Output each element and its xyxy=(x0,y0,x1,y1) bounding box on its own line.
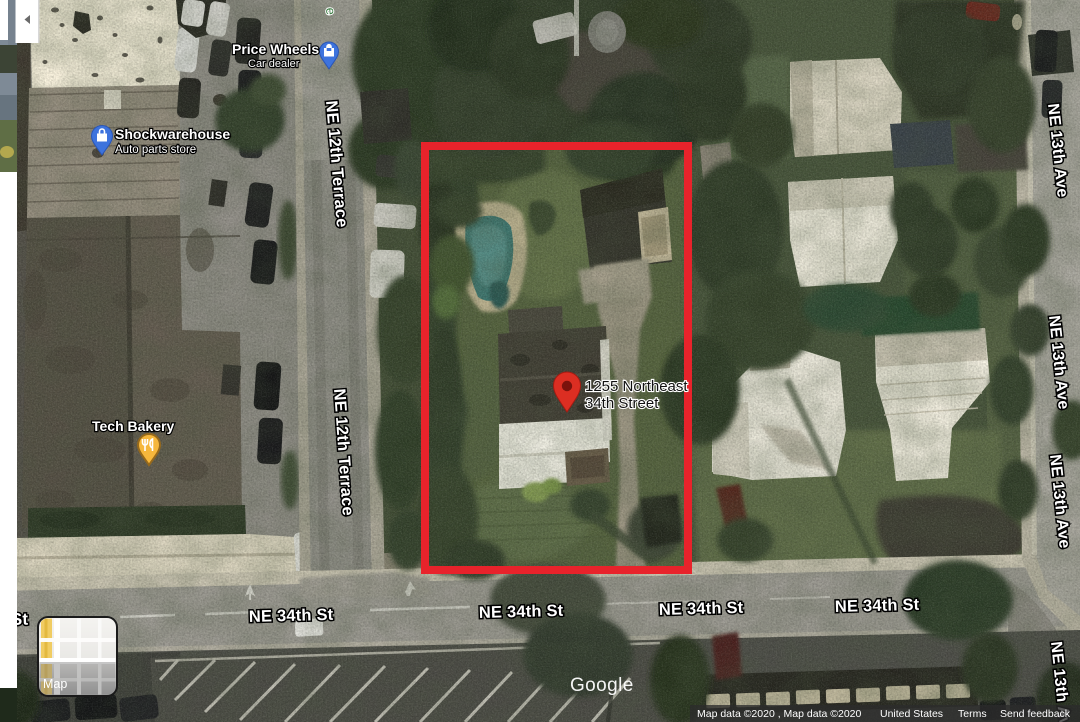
svg-text:Auto parts store: Auto parts store xyxy=(115,144,196,156)
svg-text:Send feedback: Send feedback xyxy=(1000,708,1071,720)
svg-text:Google: Google xyxy=(570,675,634,696)
svg-text:Price Wheels: Price Wheels xyxy=(232,41,319,57)
svg-text:1255 Northeast: 1255 Northeast xyxy=(585,378,688,395)
svg-text:e: e xyxy=(323,7,339,16)
svg-text:Tech Bakery: Tech Bakery xyxy=(92,418,174,434)
svg-text:NE 34th St: NE 34th St xyxy=(479,602,564,622)
svg-text:Terms: Terms xyxy=(958,708,987,720)
svg-text:NE 34th St: NE 34th St xyxy=(249,606,334,626)
svg-text:Map: Map xyxy=(43,677,67,691)
svg-text:Shockwarehouse: Shockwarehouse xyxy=(115,126,230,142)
svg-text:NE 34th St: NE 34th St xyxy=(659,599,744,619)
svg-text:NE 34th St: NE 34th St xyxy=(835,596,920,616)
svg-text:United States: United States xyxy=(880,708,943,720)
svg-text:Car dealer: Car dealer xyxy=(248,58,300,70)
svg-text:Map data ©2020 , Map data ©202: Map data ©2020 , Map data ©2020 xyxy=(697,708,861,720)
svg-text:34th Street: 34th Street xyxy=(585,395,659,412)
